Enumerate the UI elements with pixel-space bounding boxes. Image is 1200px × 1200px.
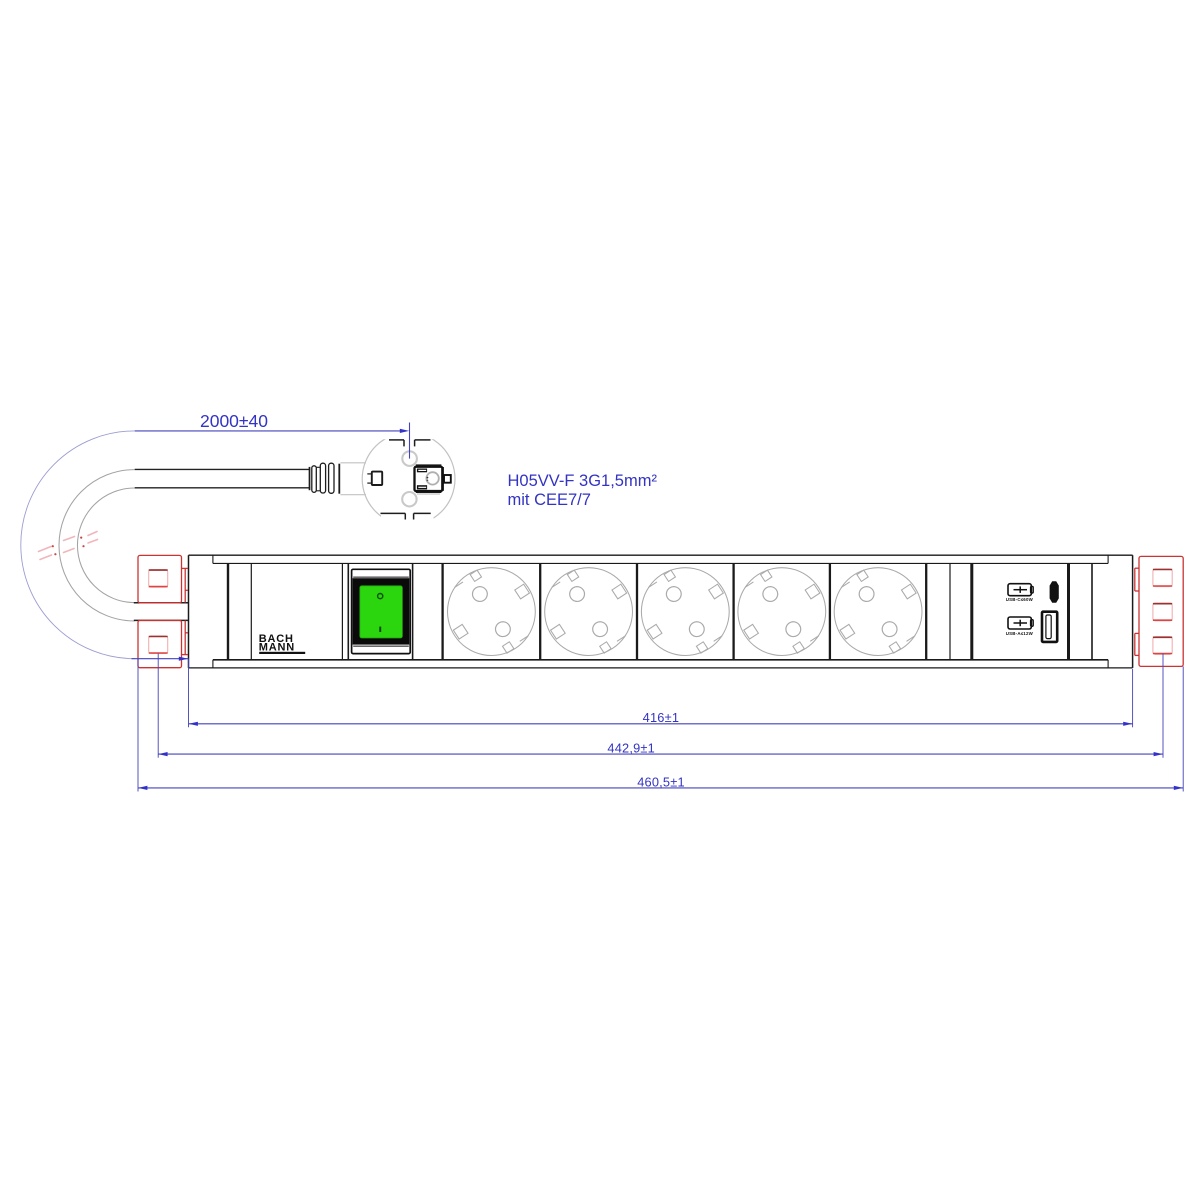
svg-text:416±1: 416±1 bbox=[643, 710, 680, 725]
svg-text:mit CEE7/7: mit CEE7/7 bbox=[508, 491, 591, 509]
svg-text:442,9±1: 442,9±1 bbox=[607, 741, 655, 756]
svg-text:USB-A≤12W: USB-A≤12W bbox=[1006, 631, 1034, 636]
svg-text:460,5±1: 460,5±1 bbox=[637, 774, 685, 789]
svg-text:USB-C≤60W: USB-C≤60W bbox=[1006, 597, 1034, 602]
svg-text:2000±40: 2000±40 bbox=[200, 411, 268, 431]
svg-text:H05VV-F 3G1,5mm²: H05VV-F 3G1,5mm² bbox=[508, 472, 658, 490]
